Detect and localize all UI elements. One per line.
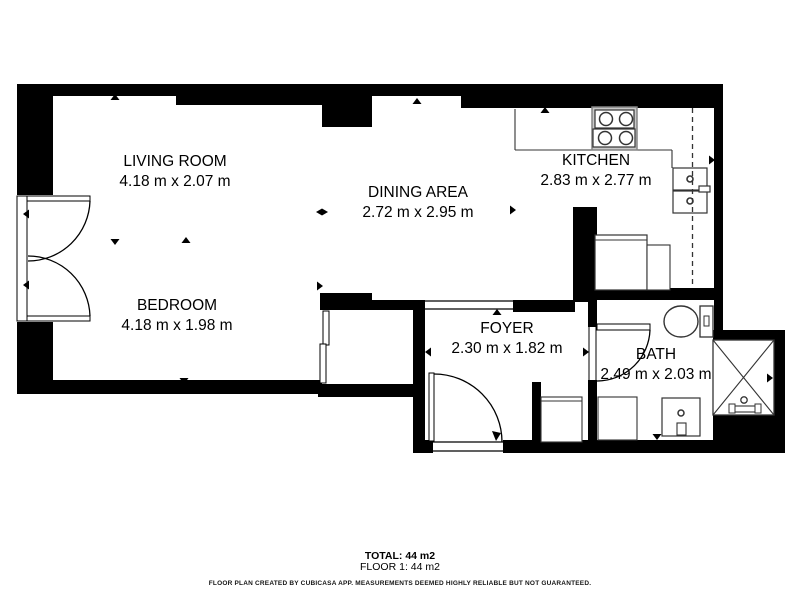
wall-left-upper xyxy=(17,84,53,195)
toilet-icon xyxy=(664,306,713,337)
room-dims: 2.49 m x 2.03 m xyxy=(600,365,711,385)
room-label-foyer: FOYER 2.30 m x 1.82 m xyxy=(451,319,562,359)
wall-alcove-right xyxy=(774,330,785,453)
refrigerator-icon xyxy=(595,235,647,290)
kitchen-fixtures xyxy=(515,107,710,290)
marker-right xyxy=(317,282,323,291)
washer-stack-icon xyxy=(673,168,710,213)
room-name: BATH xyxy=(600,345,711,365)
entry-threshold-icon xyxy=(433,440,503,453)
wall-top-step2 xyxy=(461,96,723,108)
floor-area-text: FLOOR 1: 44 m2 xyxy=(209,562,591,573)
room-label-dining-area: DINING AREA 2.72 m x 2.95 m xyxy=(362,183,473,223)
wall-top-block xyxy=(322,96,372,127)
wall-closet-top xyxy=(320,293,372,310)
room-dims: 2.30 m x 1.82 m xyxy=(451,339,562,359)
window-opening-icon xyxy=(425,298,513,312)
disclaimer-text: FLOOR PLAN CREATED BY CUBICASA APP. MEAS… xyxy=(209,580,591,587)
bath-cabinet-icon xyxy=(598,397,637,440)
marker-down xyxy=(111,239,120,245)
marker-down xyxy=(653,434,662,440)
wall-closet-bottom xyxy=(318,384,414,397)
room-label-living-room: LIVING ROOM 4.18 m x 2.07 m xyxy=(119,152,230,192)
room-name: DINING AREA xyxy=(362,183,473,203)
floor-plan-drawing xyxy=(0,0,800,600)
stove-icon xyxy=(592,107,637,150)
room-name: FOYER xyxy=(451,319,562,339)
marker-up xyxy=(413,98,422,104)
marker-left xyxy=(425,348,431,357)
marker-right xyxy=(322,209,328,216)
room-dims: 2.83 m x 2.77 m xyxy=(540,171,651,191)
room-dims: 2.72 m x 2.95 m xyxy=(362,203,473,223)
room-label-bedroom: BEDROOM 4.18 m x 1.98 m xyxy=(121,296,232,336)
wall-top xyxy=(17,84,723,96)
room-dims: 4.18 m x 2.07 m xyxy=(119,172,230,192)
footer: TOTAL: 44 m2 FLOOR 1: 44 m2 FLOOR PLAN C… xyxy=(209,551,591,587)
room-dims: 4.18 m x 1.98 m xyxy=(121,316,232,336)
sink-icon xyxy=(662,398,700,436)
marker-left xyxy=(316,209,322,216)
room-name: KITCHEN xyxy=(540,151,651,171)
marker-right xyxy=(510,206,516,215)
sliding-door-icon xyxy=(320,311,329,383)
shower-icon xyxy=(713,340,774,415)
wall-top-step1 xyxy=(176,96,322,105)
wall-kitchen-left xyxy=(573,207,597,302)
wall-bath-west-upper xyxy=(588,300,597,327)
room-label-bath: BATH 2.49 m x 2.03 m xyxy=(600,345,711,385)
wall-closet-right xyxy=(413,307,425,453)
wall-bath-west-lower xyxy=(588,380,597,443)
wall-right xyxy=(714,84,723,332)
marker-up xyxy=(182,237,191,243)
room-name: LIVING ROOM xyxy=(119,152,230,172)
floor-plan: LIVING ROOM 4.18 m x 2.07 m DINING AREA … xyxy=(0,0,800,600)
wall-foyer-bottom-stub xyxy=(425,440,433,453)
wall-bath-bottom xyxy=(590,440,715,453)
kitchen-cabinet-icon xyxy=(647,245,670,290)
room-label-kitchen: KITCHEN 2.83 m x 2.77 m xyxy=(540,151,651,191)
wall-bedroom-bottom xyxy=(17,380,322,394)
entry-door-icon xyxy=(429,373,502,442)
room-name: BEDROOM xyxy=(121,296,232,316)
foyer-cabinet-icon xyxy=(541,397,582,442)
wall-alcove-bottom xyxy=(713,415,775,453)
wall-cabinet-stub xyxy=(532,382,541,443)
bath-door-opening xyxy=(587,327,598,380)
